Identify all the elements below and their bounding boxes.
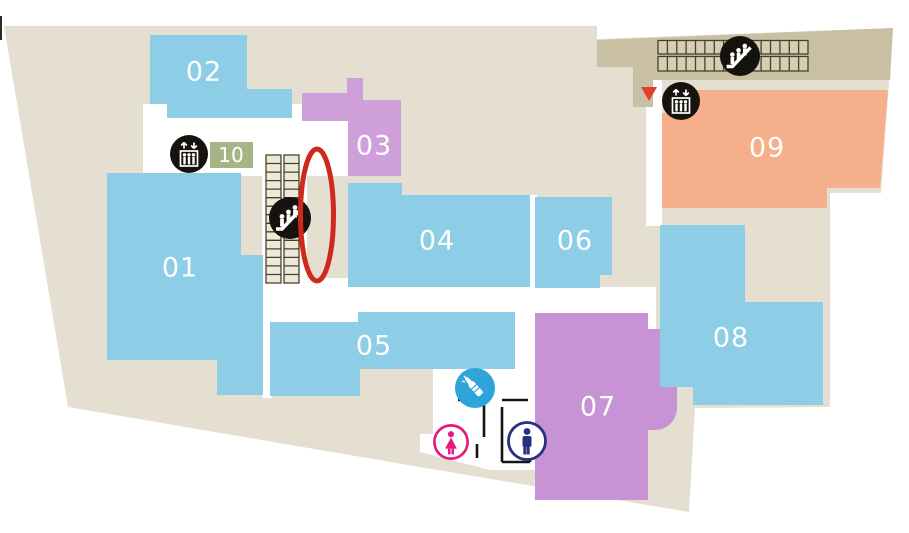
room-07-label: 07 (580, 392, 616, 423)
elevator-icon (661, 81, 701, 121)
room-03-label: 03 (356, 131, 392, 162)
room-02-label: 02 (186, 57, 222, 88)
screenshot-artifact (0, 16, 2, 40)
room-04-label: 04 (419, 226, 455, 257)
location-pointer-icon (640, 86, 658, 102)
room-05-label: 05 (356, 331, 392, 362)
elevator-icon (169, 134, 209, 174)
room-03-part[interactable] (347, 78, 363, 94)
escalator-icon (719, 35, 761, 77)
room-06-label: 06 (557, 226, 593, 257)
room-06-part[interactable] (535, 275, 600, 288)
escalator-icon (268, 196, 312, 240)
room-09-label: 09 (749, 133, 785, 164)
room-08-part[interactable] (693, 302, 823, 405)
nursing-room-icon (454, 367, 496, 409)
room-01-label: 01 (162, 253, 198, 284)
womens-restroom-icon (432, 423, 470, 461)
room-01-part[interactable] (217, 255, 263, 395)
floor-map: 01 02 03 04 05 06 07 08 09 10 (0, 0, 909, 533)
mens-restroom-icon (506, 420, 548, 462)
room-10-label: 10 (218, 143, 243, 167)
room-02-part[interactable] (167, 89, 292, 118)
room-05[interactable] (270, 322, 360, 396)
room-08-label: 08 (713, 323, 749, 354)
